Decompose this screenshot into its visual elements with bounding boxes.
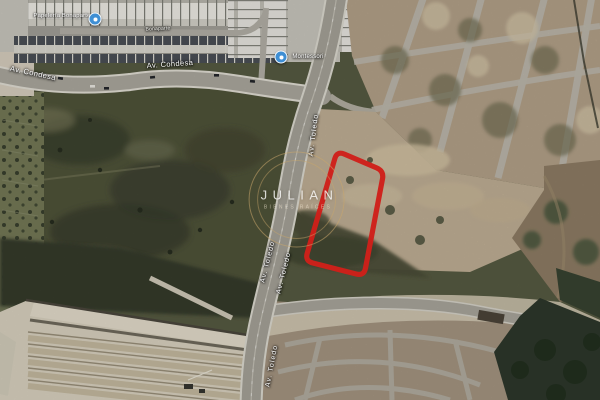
- poi-marker-icon[interactable]: [275, 51, 288, 64]
- satellite-map[interactable]: Av. Condesa Av. Condesa Bonaparte Av. To…: [0, 0, 600, 400]
- poi-glyph-icon: [279, 55, 283, 59]
- poi-marker-icon[interactable]: [89, 13, 102, 26]
- poi-label-montessori[interactable]: Montessori: [292, 54, 323, 60]
- poi-label-papeleria-bonaparte[interactable]: Papelería Bonaparte: [34, 13, 91, 19]
- poi-glyph-icon: [93, 17, 97, 21]
- satellite-imagery: [0, 0, 600, 400]
- image-grain: [0, 0, 600, 400]
